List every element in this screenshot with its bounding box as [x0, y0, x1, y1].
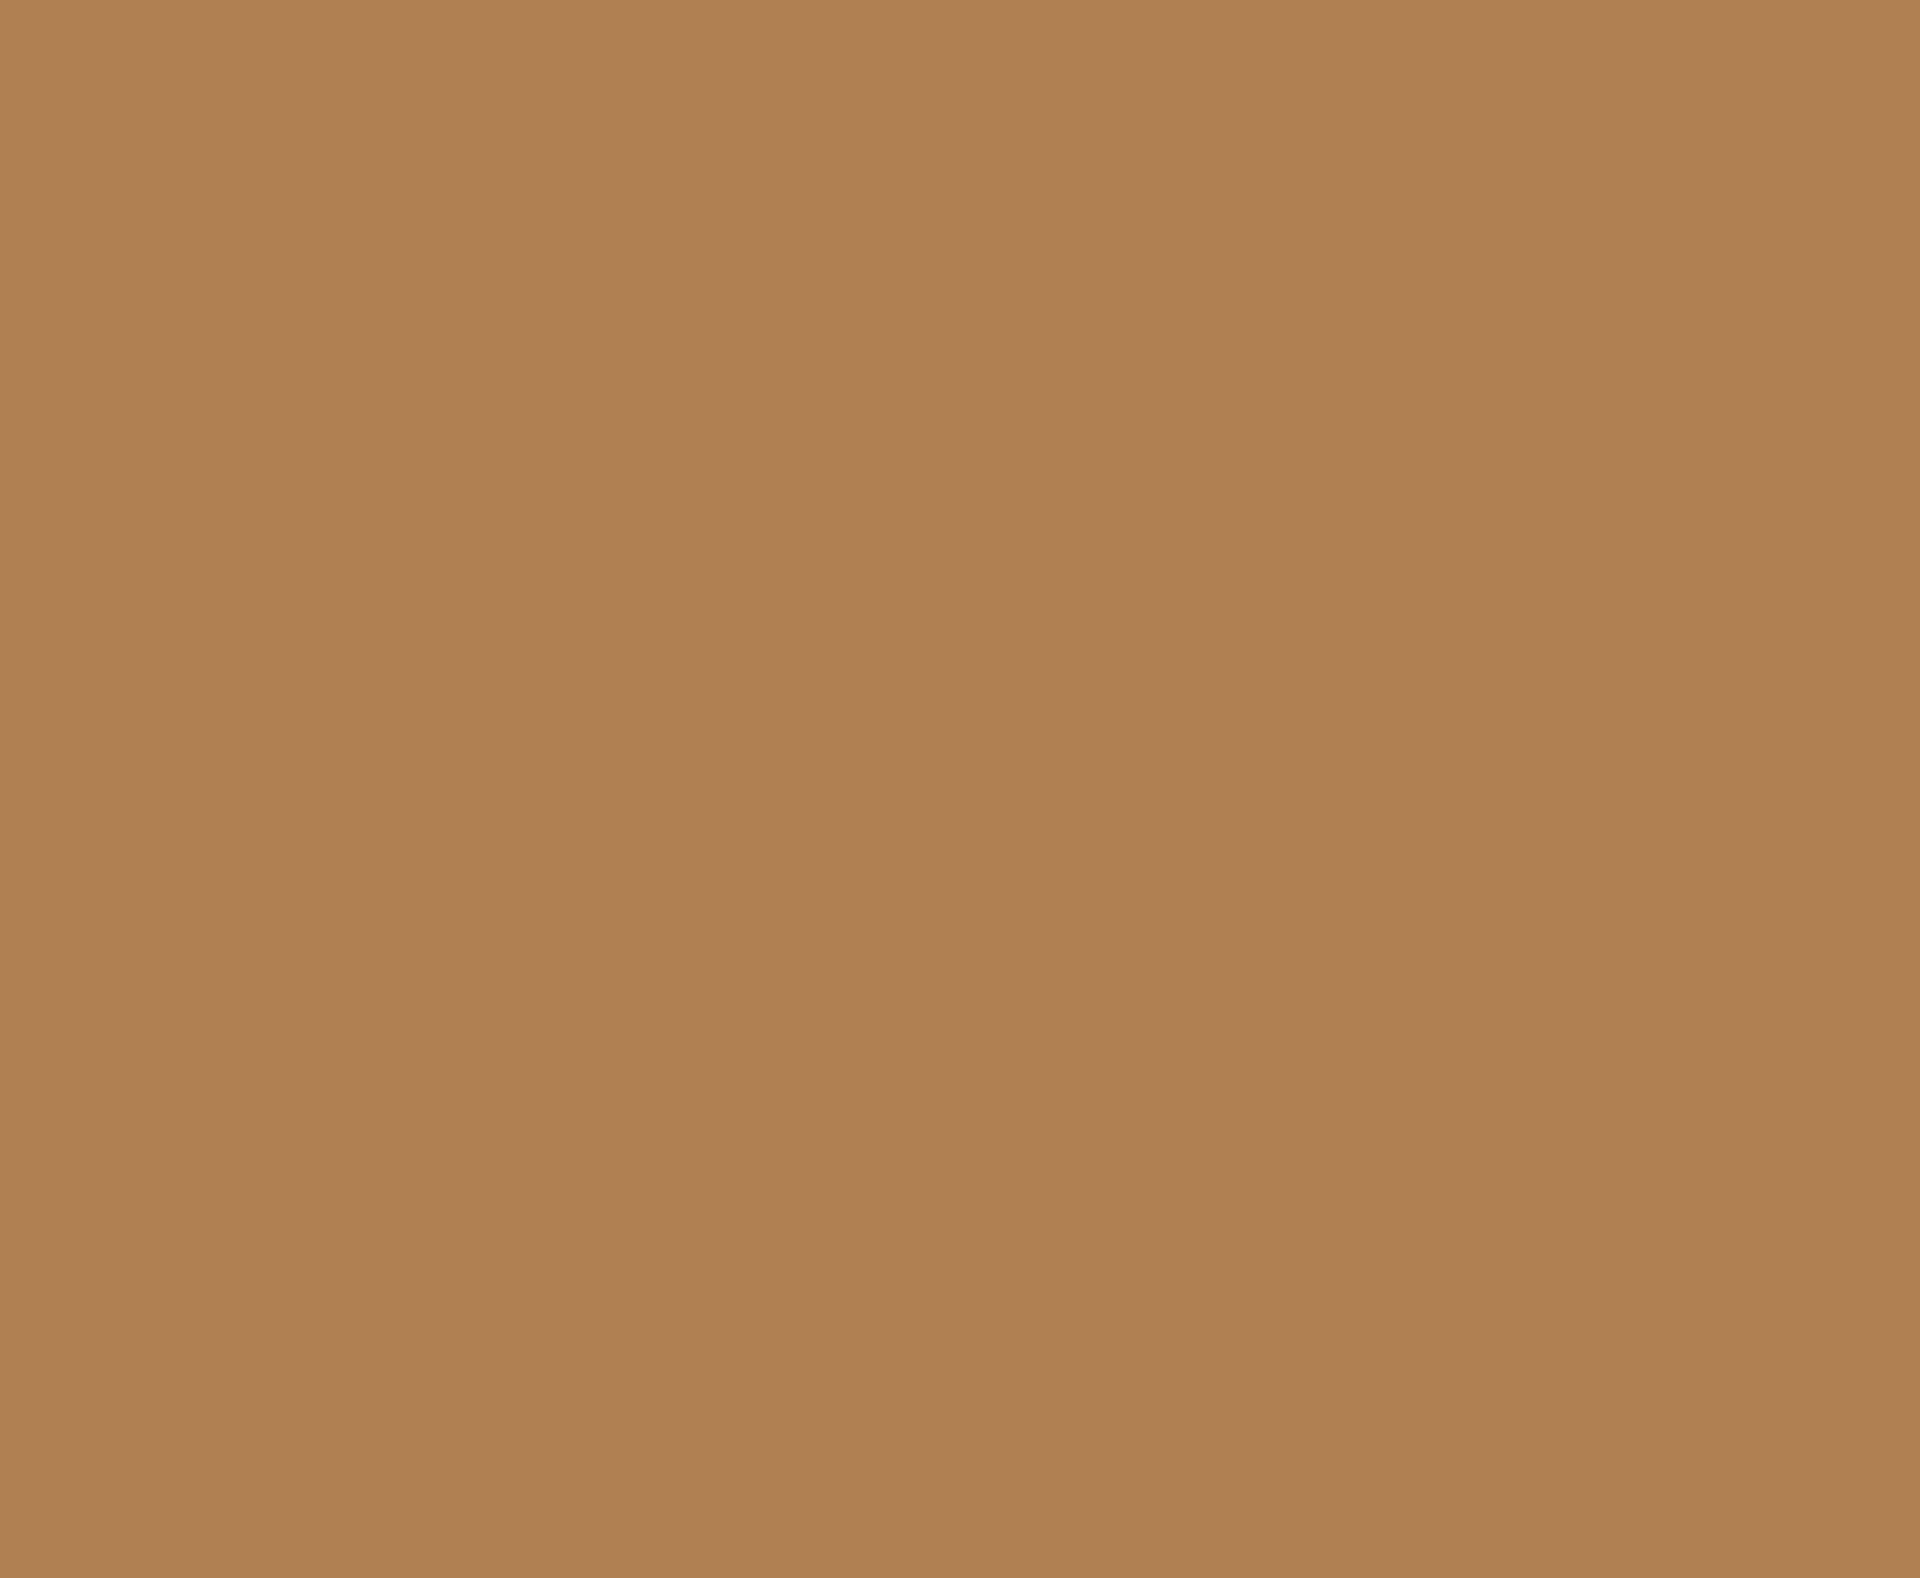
blank-solid-color-screen [0, 0, 1920, 1578]
